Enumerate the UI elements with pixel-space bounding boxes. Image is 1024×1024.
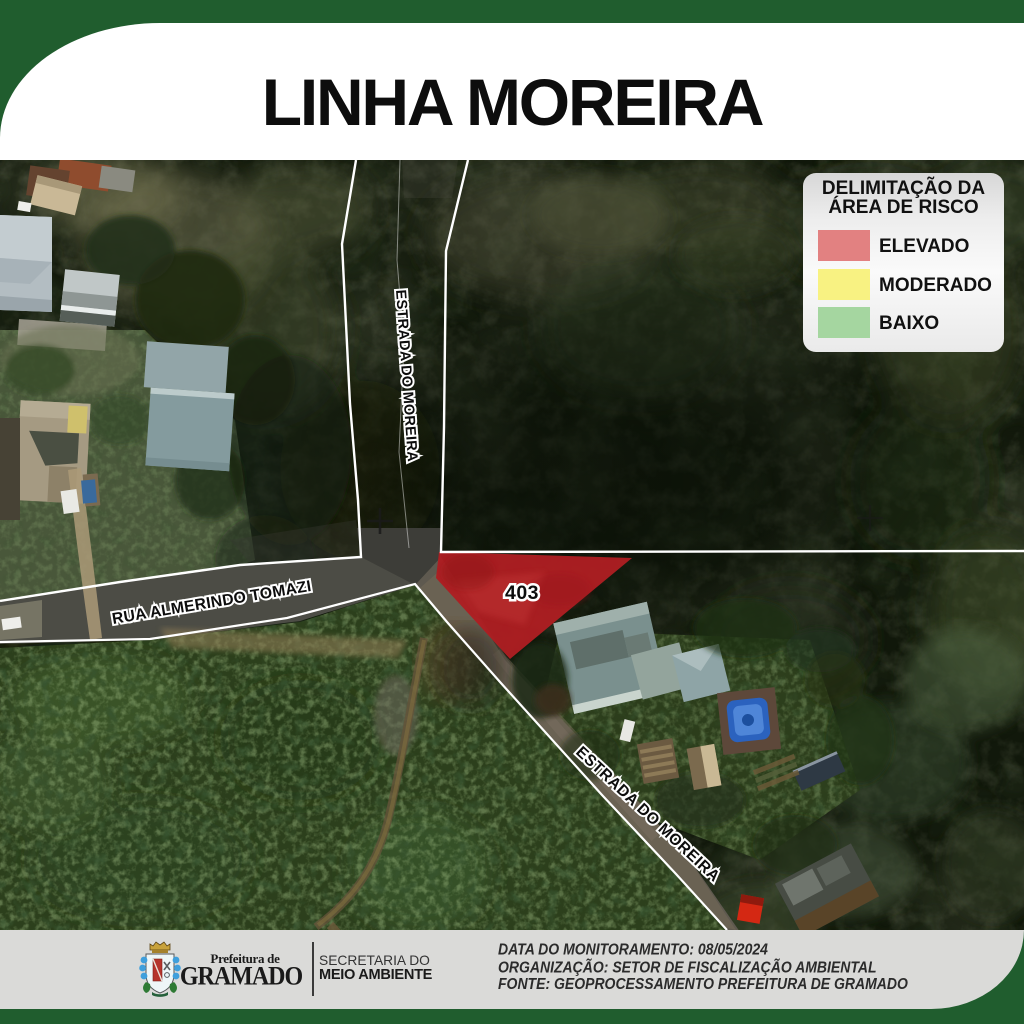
svg-text:403: 403 [505, 582, 539, 604]
